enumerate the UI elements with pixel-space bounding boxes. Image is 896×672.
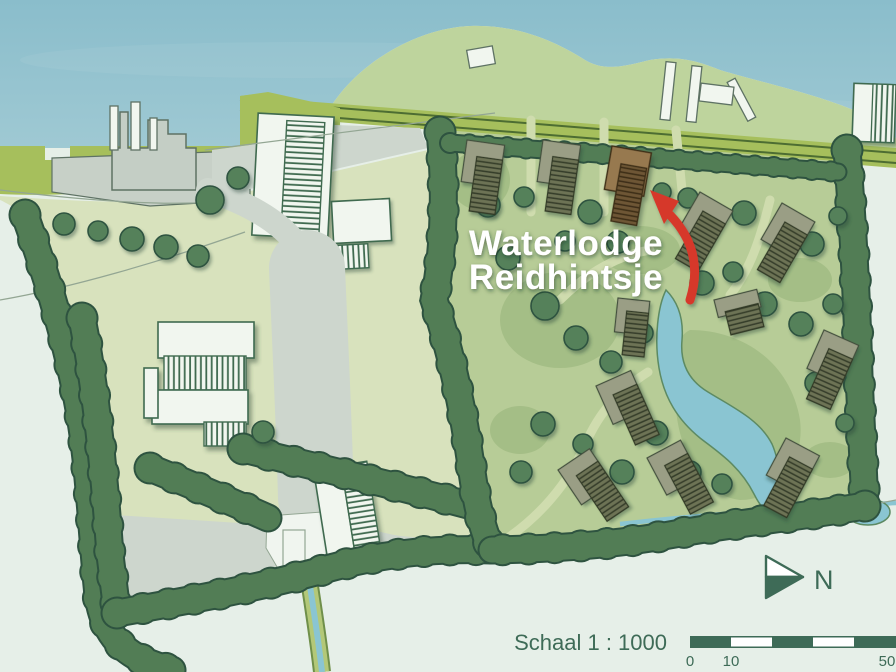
farm-house xyxy=(158,322,254,358)
tree xyxy=(600,351,622,373)
tree xyxy=(836,414,854,432)
farm-wing xyxy=(152,390,248,424)
scale-tick-0: 0 xyxy=(686,653,694,670)
scale-bar-segment xyxy=(731,638,772,647)
farm-roof-hatched xyxy=(164,356,246,390)
tree xyxy=(196,186,224,214)
north-label: N xyxy=(814,565,834,595)
tree xyxy=(829,207,847,225)
tree xyxy=(723,262,743,282)
factory-chimney xyxy=(110,106,118,150)
shore-building xyxy=(852,83,896,142)
scale-tick-10: 10 xyxy=(723,653,740,670)
hedge-resort-east xyxy=(847,150,865,506)
tree xyxy=(510,461,532,483)
tree xyxy=(252,421,274,443)
tree xyxy=(154,235,178,259)
tree xyxy=(120,227,144,251)
tree xyxy=(789,312,813,336)
shore-platform xyxy=(699,83,734,105)
tree xyxy=(578,200,602,224)
title-line-2: Reidhintsje xyxy=(469,258,663,297)
tree xyxy=(514,187,534,207)
scale-bar-segment xyxy=(813,638,854,647)
map-title: Waterlodge Reidhintsje xyxy=(469,224,663,297)
tree xyxy=(53,213,75,235)
tree xyxy=(227,167,249,189)
dune-hut xyxy=(467,46,496,68)
scale-bar-track xyxy=(690,636,896,648)
shore-building-roof xyxy=(871,84,896,143)
tree xyxy=(531,412,555,436)
tree xyxy=(88,221,108,241)
farm-annex xyxy=(144,368,158,418)
factory-chimney xyxy=(150,118,157,150)
tree xyxy=(732,201,756,225)
annex-body xyxy=(331,199,391,244)
tree xyxy=(564,326,588,350)
scale-label: Schaal 1 : 1000 xyxy=(514,630,667,655)
tree xyxy=(823,294,843,314)
scale-tick-50: 50 xyxy=(879,653,896,670)
lodge-roof-hatched xyxy=(622,311,648,357)
tree xyxy=(187,245,209,267)
tree xyxy=(610,460,634,484)
map-canvas: Waterlodge Reidhintsje N Schaal 1 : 1000… xyxy=(0,0,896,672)
factory-chimney xyxy=(131,102,140,150)
tree xyxy=(712,474,732,494)
site-plan-map: Waterlodge Reidhintsje N Schaal 1 : 1000… xyxy=(0,0,896,672)
